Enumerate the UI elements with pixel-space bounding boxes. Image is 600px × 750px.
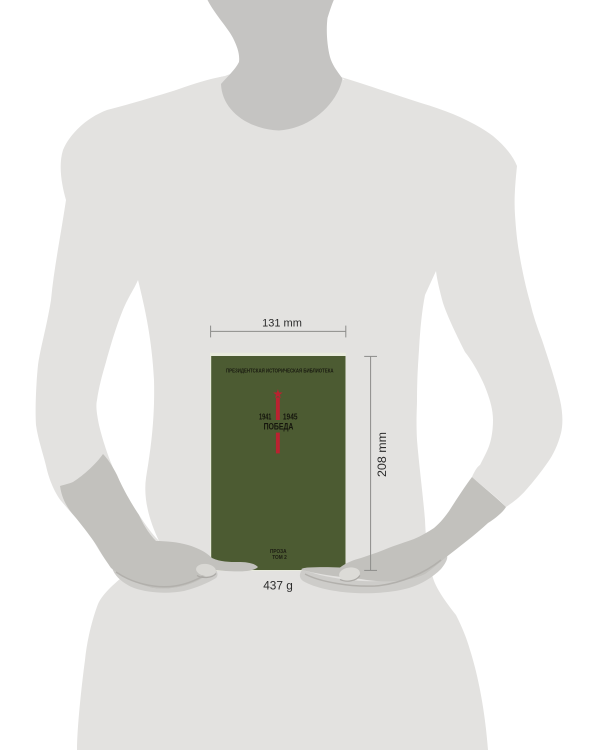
svg-text:131 mm: 131 mm xyxy=(262,317,302,329)
svg-text:ТОМ 2: ТОМ 2 xyxy=(272,555,287,561)
svg-text:ПРЕЗИДЕНТСКАЯ ИСТОРИЧЕСКАЯ БИБ: ПРЕЗИДЕНТСКАЯ ИСТОРИЧЕСКАЯ БИБЛИОТЕКА xyxy=(226,369,334,375)
svg-text:ПОБЕДА: ПОБЕДА xyxy=(264,421,294,431)
svg-text:437 g: 437 g xyxy=(263,579,293,593)
svg-text:208 mm: 208 mm xyxy=(377,432,389,477)
